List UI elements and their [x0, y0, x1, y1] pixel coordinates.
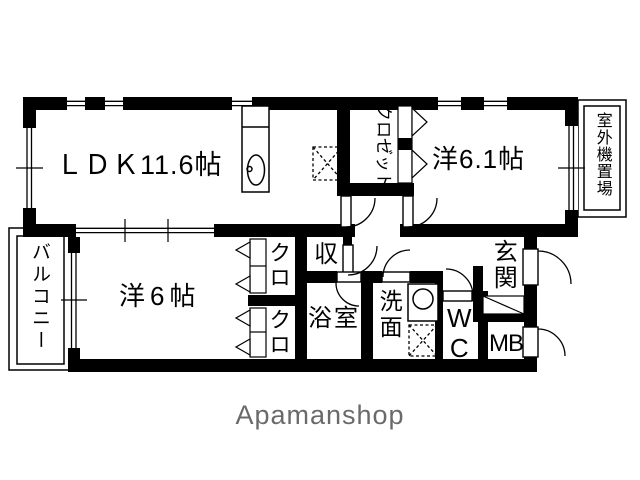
- room-label-entrance: 玄関: [490, 239, 515, 291]
- folding-door-triangle: [236, 276, 250, 292]
- folding-door-triangle: [236, 310, 250, 326]
- wall-right-upper: [565, 97, 578, 237]
- door-arc-ldk: [346, 198, 375, 227]
- door-leaf-ldk: [341, 196, 351, 227]
- door-arc-washroom: [383, 250, 410, 277]
- wall-storage-east-stub: [343, 237, 352, 245]
- room-label-ldk: ＬＤＫ11.6帖: [56, 151, 223, 179]
- closet-upper-panel: [250, 239, 266, 293]
- room-label-storage: 収: [314, 242, 338, 267]
- room-label-washroom: 洗面: [377, 289, 401, 341]
- room-label-mb: MB: [489, 331, 523, 356]
- wall-kuro-divider: [248, 295, 307, 306]
- wall-bedroom-left: [68, 237, 80, 359]
- wall-wc-west: [435, 283, 443, 359]
- room-label-closet-lower: クロ: [267, 308, 290, 358]
- wall-ldk-bottom: [23, 224, 355, 237]
- closet-lower-panel: [250, 308, 266, 357]
- door-arc-front: [538, 251, 571, 284]
- folding-door-triangle: [412, 108, 427, 136]
- room-label-balcony: バルコニー: [29, 242, 49, 352]
- wall-wc-mb-divider: [478, 291, 488, 359]
- door-leaf-room61: [403, 196, 413, 227]
- room-label-western-6: 洋6帖: [119, 283, 200, 310]
- door-leaf-storage: [343, 245, 353, 274]
- door-arc-wc: [446, 269, 473, 296]
- wall-top: [23, 97, 578, 110]
- door-arc-room61: [408, 198, 437, 227]
- wall-washroom-top-a: [373, 271, 382, 283]
- door-arc-bath: [336, 283, 359, 306]
- folding-door-triangle: [412, 150, 427, 178]
- room-label-western-6-1: 洋6.1帖: [432, 146, 525, 173]
- wall-washroom-top-b: [410, 271, 443, 283]
- room-label-bathroom: 浴室: [308, 306, 360, 331]
- wall-right-lower: [524, 224, 537, 372]
- room-label-wc: WC: [445, 303, 472, 363]
- kitchen-counter: [242, 106, 269, 192]
- wall-mb-top: [483, 314, 524, 322]
- door-arc-mb: [538, 329, 565, 356]
- closet-main-panel: [398, 106, 412, 183]
- door-leaf-bath: [337, 272, 361, 282]
- room-label-closet-main: クロゼット: [374, 104, 392, 190]
- room-label-outdoor-unit: 室外機置場: [593, 112, 610, 197]
- wall-left: [23, 97, 36, 237]
- wall-bath-east: [361, 271, 373, 359]
- room-label-closet-upper: クロ: [267, 241, 290, 291]
- kitchen-sink: [248, 155, 265, 185]
- wall-room61-bottom: [400, 224, 578, 237]
- door-leaf-washroom: [382, 272, 410, 282]
- folding-door-triangle: [236, 242, 250, 258]
- kitchen-faucet: [247, 167, 252, 172]
- wall-bath-top: [295, 271, 337, 283]
- wall-closet-west: [337, 97, 350, 196]
- washing-machine-space: [409, 325, 437, 356]
- door-leaf-wc: [443, 291, 472, 301]
- folding-door-triangle: [236, 339, 250, 355]
- apamanshop-logo: Apamanshop: [0, 400, 640, 431]
- shoe-cabinet: [483, 296, 524, 314]
- floor-plan-page: ＬＤＫ11.6帖 洋6.1帖 洋6帖 クロゼット クロ クロ 収 浴室 洗面 W…: [0, 0, 640, 480]
- washbasin: [408, 284, 438, 321]
